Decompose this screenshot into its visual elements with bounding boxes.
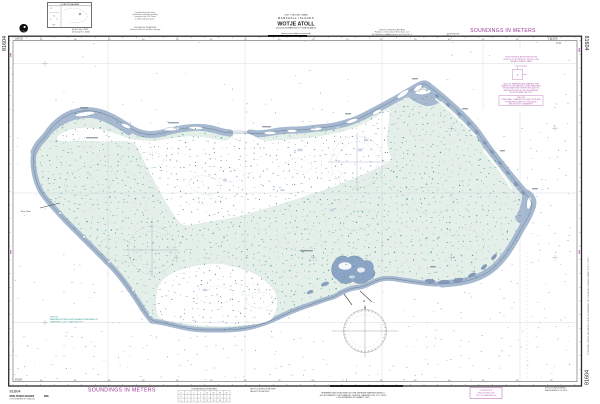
svg-text:For Symbols and Abbreviations: For Symbols and Abbreviations see Chart …	[372, 33, 412, 36]
svg-text:NSN·7642O14162904: NSN·7642O14162904	[10, 395, 35, 398]
svg-text:2: 2	[194, 396, 195, 398]
svg-text:165°: 165°	[52, 25, 56, 27]
svg-text:COPYRIGHT 1985 BY THE UNITED S: COPYRIGHT 1985 BY THE UNITED STATES GOVE…	[587, 256, 590, 355]
svg-text:81604: 81604	[10, 389, 22, 394]
svg-text:U.S. Navy Surveys: U.S. Navy Surveys	[445, 35, 461, 38]
svg-text:SOUNDINGS IN METERS: SOUNDINGS IN METERS	[88, 387, 156, 393]
svg-text:5: 5	[200, 392, 201, 394]
svg-text:(LIST 7 SECOND CHAIN): (LIST 7 SECOND CHAIN)	[284, 13, 307, 16]
svg-text:1: 1	[187, 392, 188, 394]
svg-text:9°45′: 9°45′	[556, 42, 562, 45]
svg-text:RBL: RBL	[44, 395, 50, 398]
svg-text:15: 15	[213, 400, 215, 402]
svg-text:11°: 11°	[50, 8, 53, 10]
svg-text:0: 0	[181, 396, 182, 398]
svg-text:HEIGHTS IN METERS: HEIGHTS IN METERS	[250, 391, 270, 393]
svg-text:81604: 81604	[2, 36, 8, 51]
svg-text:5: 5	[213, 396, 214, 398]
svg-text:reduced to Mean Low Water Spri: reduced to Mean Low Water Springs	[130, 28, 161, 31]
svg-text:LITHOGRAPHED BY DMAHTC 4-85: LITHOGRAPHED BY DMAHTC 4-85	[337, 396, 371, 399]
svg-text:THE ANCHORAGE CHART.: THE ANCHORAGE CHART.	[510, 60, 533, 63]
svg-text:(at anchorage): (at anchorage)	[515, 64, 527, 67]
svg-text:169°30′: 169°30′	[15, 38, 24, 41]
svg-text:SALES AGENTS OF NOS: SALES AGENTS OF NOS	[545, 389, 568, 392]
svg-text:1: 1	[187, 396, 188, 398]
svg-text:CHAPTER 2, U.S. COAST PILOT 8: CHAPTER 2, U.S. COAST PILOT 8	[50, 321, 84, 324]
svg-text:in 1944 and later years.: in 1944 and later years.	[135, 17, 155, 20]
svg-text:MARSHALL ISLANDS: MARSHALL ISLANDS	[278, 16, 314, 20]
svg-text:(Formerly ROMANZOW or OTDIA IS: (Formerly ROMANZOW or OTDIA ISLANDS)	[276, 26, 316, 29]
svg-text:18: 18	[219, 400, 221, 402]
svg-text:170°00′E: 170°00′E	[548, 38, 558, 41]
svg-text:SEE NOTICE TO MARINERS.: SEE NOTICE TO MARINERS.	[509, 103, 534, 106]
svg-text:9°10′N: 9°10′N	[15, 379, 22, 382]
svg-text:10: 10	[206, 392, 208, 394]
svg-text:NOT FOR NAVIGATION: NOT FOR NAVIGATION	[476, 394, 496, 397]
svg-text:6: 6	[194, 400, 195, 402]
svg-text:3: 3	[200, 396, 201, 398]
svg-text:7: 7	[226, 396, 227, 398]
svg-text:2: 2	[194, 392, 195, 394]
svg-text:SOUNDINGS IN METERS: SOUNDINGS IN METERS	[470, 28, 536, 34]
svg-text:6: 6	[220, 396, 221, 398]
svg-text:20: 20	[213, 392, 215, 394]
svg-text:9: 9	[200, 400, 201, 402]
svg-text:4: 4	[207, 396, 208, 398]
svg-text:12: 12	[206, 400, 208, 402]
svg-text:81604: 81604	[585, 370, 591, 385]
svg-text:(Formerly H.O. 6036): (Formerly H.O. 6036)	[72, 30, 90, 33]
svg-text:0: 0	[181, 400, 182, 402]
svg-text:50: 50	[219, 392, 221, 394]
svg-text:81604: 81604	[583, 36, 589, 51]
svg-text:3: 3	[187, 400, 188, 402]
svg-text:Rruo Chan.: Rruo Chan.	[21, 211, 32, 213]
svg-text:CONVERSION OF METERS: CONVERSION OF METERS	[191, 389, 217, 391]
svg-text:21: 21	[226, 400, 228, 402]
svg-text:LOCATION DIAGRAM: LOCATION DIAGRAM	[60, 3, 79, 6]
svg-text:WITH EXTREME CAUTION.: WITH EXTREME CAUTION.	[510, 91, 533, 94]
svg-text:LITHOGRAPHED BY DMA 4-85: LITHOGRAPHED BY DMA 4-85	[10, 398, 36, 401]
